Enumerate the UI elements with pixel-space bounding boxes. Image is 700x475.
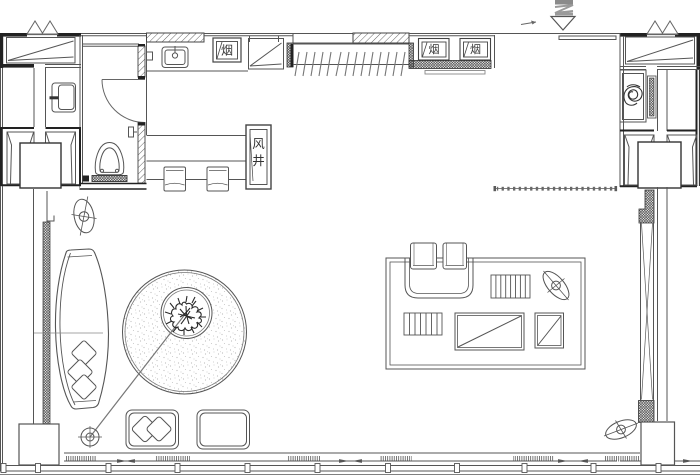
svg-text:风: 风 [252,137,265,151]
svg-text:井: 井 [252,154,265,168]
svg-text:烟: 烟 [429,42,440,56]
svg-text:烟: 烟 [470,42,481,56]
svg-text:烟: 烟 [221,44,233,58]
